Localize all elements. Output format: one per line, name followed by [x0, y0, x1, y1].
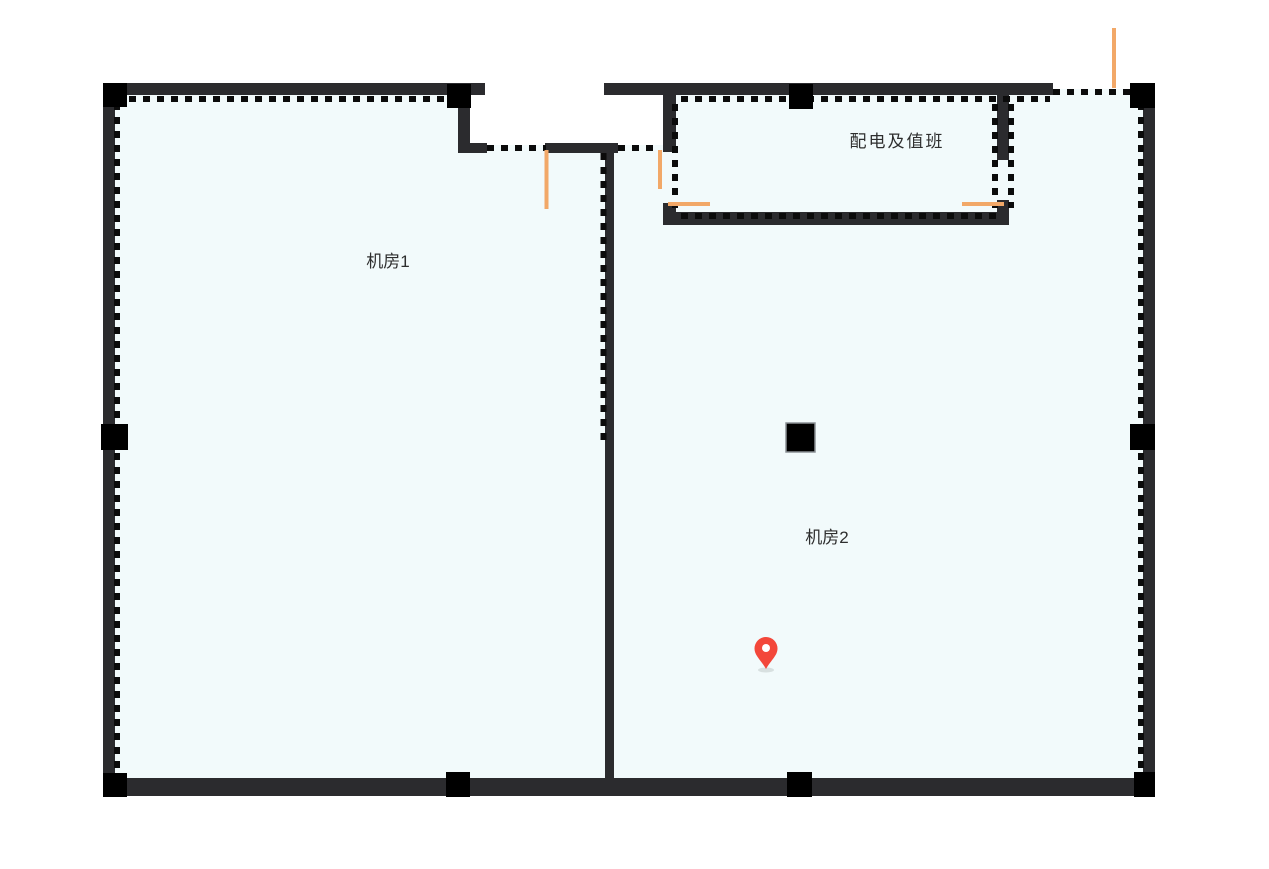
- wall-top-left-segment: [103, 83, 485, 95]
- room1-label: 机房1: [366, 252, 409, 271]
- floorplan-svg: 机房1 机房2 配电及值班: [0, 0, 1269, 869]
- pillar-bottom-mid-left: [446, 772, 470, 797]
- power-duty-room-label: 配电及值班: [850, 132, 945, 151]
- room1-area[interactable]: [109, 89, 609, 784]
- pillar-mid-right: [1130, 424, 1155, 450]
- pillar-mid-left: [101, 424, 128, 450]
- wall-room-divider: [605, 150, 614, 796]
- pin-hole: [762, 644, 770, 652]
- room2-area[interactable]: [609, 89, 1149, 784]
- wall-top-right-segment: [604, 83, 1053, 95]
- pillar-top-mid-right: [789, 84, 813, 109]
- pillar-top-left: [103, 83, 127, 107]
- pillar-bottom-right: [1134, 772, 1155, 797]
- pillar-top-right: [1130, 83, 1155, 108]
- room2-label: 机房2: [805, 528, 848, 547]
- pillar-bottom-left: [103, 773, 127, 797]
- wall-bottom: [103, 778, 1155, 796]
- wall-notch-foot: [458, 143, 487, 153]
- wall-subroom-right-upper: [997, 95, 1009, 160]
- floorplan-canvas: 机房1 机房2 配电及值班: [0, 0, 1269, 869]
- pillar-freestanding-room2: [786, 423, 815, 452]
- pillar-top-mid-left: [447, 84, 471, 108]
- pillar-bottom-mid-right: [787, 772, 812, 797]
